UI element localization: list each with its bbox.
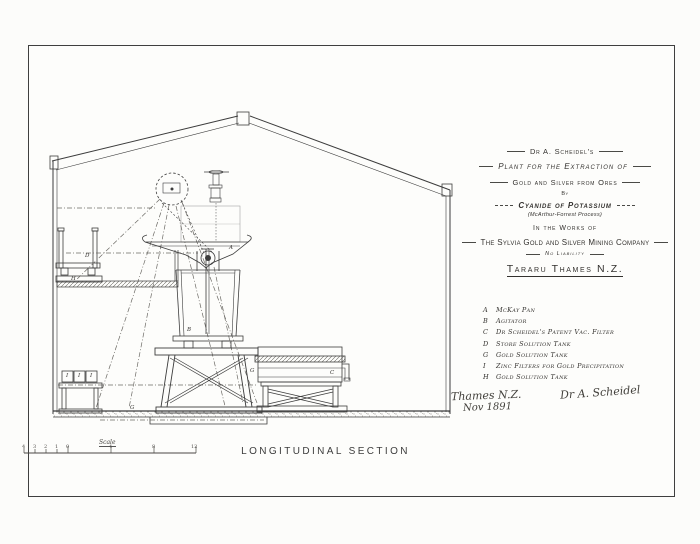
- part-label-zinc-filter: I: [66, 373, 68, 379]
- part-label-agitator: B: [187, 327, 191, 333]
- decorative-dash: [526, 254, 540, 255]
- scale-number: 4: [109, 444, 112, 450]
- legend-label: Dr Scheidel's Patent Vac. Filter: [496, 327, 614, 338]
- legend-letter: D: [483, 339, 496, 350]
- title-works: In the Works of: [533, 225, 597, 232]
- decorative-dash: [462, 242, 476, 243]
- title-plant: Plant for the Extraction of: [498, 162, 628, 171]
- legend-label: Gold Solution Tank: [496, 372, 568, 383]
- scale-label: Scale: [99, 439, 116, 447]
- handwritten-date: Nov 1891: [463, 401, 512, 414]
- store-solution-tank: [56, 228, 102, 282]
- part-label-store-tank: D: [85, 253, 89, 259]
- part-label-gold-tank-g: G: [250, 368, 254, 374]
- scale-number: 1: [55, 444, 58, 450]
- decorative-dash: [617, 205, 635, 206]
- legend-item: I Zinc Filters for Gold Precipitation: [483, 361, 683, 372]
- legend-label: Agitator: [496, 316, 527, 327]
- title-by: By: [561, 191, 568, 197]
- legend-item: D Store Solution Tank: [483, 339, 683, 350]
- scale-number: 8: [152, 444, 155, 450]
- decorative-dash: [590, 254, 604, 255]
- title-gold-silver: Gold and Silver from Ores: [513, 178, 618, 187]
- scale-number: 2: [44, 444, 47, 450]
- decorative-dash: [507, 151, 525, 152]
- scale-number: 3: [33, 444, 36, 450]
- scale-number: 0: [66, 444, 69, 450]
- agitator-tank: [173, 249, 243, 348]
- scale-number: 4: [22, 444, 25, 450]
- legend-item: H Gold Solution Tank: [483, 372, 683, 383]
- section-caption: LONGITUDINAL SECTION: [238, 446, 413, 457]
- part-label-mckay-pan: A: [229, 245, 233, 251]
- legend-label: McKay Pan: [496, 305, 535, 316]
- legend-letter: B: [483, 316, 496, 327]
- title-company: The Sylvia Gold and Silver Mining Compan…: [481, 238, 650, 247]
- decorative-dash: [633, 166, 651, 167]
- part-label-zinc-filter: I: [78, 373, 80, 379]
- legend-item: C Dr Scheidel's Patent Vac. Filter: [483, 327, 683, 338]
- trestle-table: [155, 348, 262, 413]
- legend-letter: I: [483, 361, 496, 372]
- title-no-liability: No Liability: [545, 251, 585, 257]
- decorative-dash: [654, 242, 668, 243]
- legend-label: Gold Solution Tank: [496, 350, 568, 361]
- decorative-dash: [622, 182, 640, 183]
- title-block: Dr A. Scheidel's Plant for the Extractio…: [455, 147, 675, 277]
- legend-item: B Agitator: [483, 316, 683, 327]
- part-label-zinc-filter: I: [90, 373, 92, 379]
- drawing-sheet: { "title_block": { "author": "Dr A. Sche…: [0, 0, 700, 544]
- legend-letter: G: [483, 350, 496, 361]
- title-cyanide: Cyanide of Potassium: [518, 201, 611, 210]
- decorative-dash: [495, 205, 513, 206]
- part-label-gold-tank-pit: G: [130, 405, 134, 411]
- decorative-dash: [490, 182, 508, 183]
- legend-item: A McKay Pan: [483, 305, 683, 316]
- decorative-dash: [599, 151, 623, 152]
- legend-label: Zinc Filters for Gold Precipitation: [496, 361, 624, 372]
- legend-letter: C: [483, 327, 496, 338]
- part-label-filter: C: [330, 370, 334, 376]
- legend-letter: A: [483, 305, 496, 316]
- title-location: Tararu Thames N.Z.: [507, 263, 624, 275]
- decorative-dash: [479, 166, 493, 167]
- vacuum-filter: [255, 347, 350, 412]
- part-label-gold-tank-h: H: [71, 276, 76, 282]
- legend-list: A McKay Pan B Agitator C Dr Scheidel's P…: [483, 305, 683, 383]
- title-author: Dr A. Scheidel's: [530, 147, 594, 156]
- scale-number: 12: [191, 444, 197, 450]
- legend-label: Store Solution Tank: [496, 339, 571, 350]
- legend-item: G Gold Solution Tank: [483, 350, 683, 361]
- title-process: (McArthur-Forrest Process): [528, 212, 602, 218]
- legend-letter: H: [483, 372, 496, 383]
- building-outline: [50, 112, 452, 424]
